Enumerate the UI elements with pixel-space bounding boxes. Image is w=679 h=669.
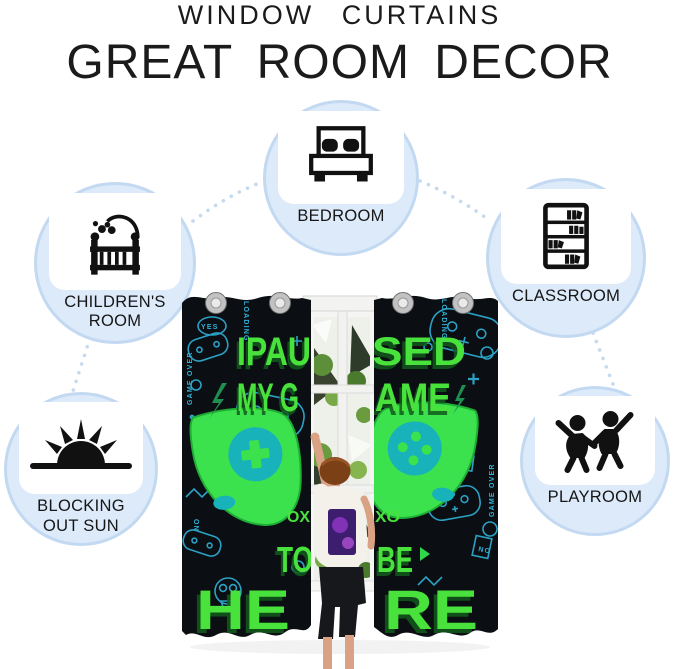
doodle-word-game-over-right: GAME OVER [489,463,496,517]
slogan-fragment-ipau: IPAU [237,330,311,374]
child-hand [311,433,320,442]
curtain-scene: LOADING YES GAME OVER ON [182,285,498,669]
page-title: GREAT ROOM DECOR [0,35,679,90]
slogan-fragment-ox: OX [287,509,310,526]
curtain-panel-left: LOADING YES GAME OVER ON [182,293,313,642]
dancing-kids-icon [547,406,643,476]
slogan-fragment-my-g: MY G [237,376,299,420]
connector-bedroom-classroom [420,181,489,220]
playroom-iconbox [535,396,656,485]
curtain-panel-right: LOADING GAME NO GAME OVER [362,293,498,642]
feature-label-classroom: CLASSROOM [512,287,620,306]
feature-label-blocking-sun: BLOCKING OUT SUN [27,497,135,536]
slogan-fragment-xo: XO [375,509,400,526]
feature-bubble-blocking-sun: BLOCKING OUT SUN [4,392,158,546]
product-infographic: WINDOW CURTAINS GREAT ROOM DECOR BEDROOM [0,0,679,669]
doodle-word-yes: YES [201,324,219,331]
child-right-leg [345,635,354,669]
window-rail-upper [310,385,374,393]
slogan-fragment-be: BE [377,539,413,580]
feature-bubble-playroom: PLAYROOM [520,386,670,536]
childrens-room-iconbox [49,193,180,290]
brand-line: WINDOW CURTAINS [0,0,679,31]
floor-shadow [190,640,490,654]
curtain-product-photo: LOADING YES GAME OVER ON [182,285,498,669]
blocking-sun-iconbox [19,402,143,494]
child-shorts [318,567,366,639]
sun-icon [23,417,139,479]
feature-label-childrens-room: CHILDREN'S ROOM [61,293,169,332]
crib-icon [77,205,153,277]
feature-bubble-classroom: CLASSROOM [486,178,646,338]
bedroom-iconbox [278,111,404,204]
connector-classroom-playroom [593,333,613,384]
slogan-fragment-re: RE [384,578,478,641]
feature-bubble-bedroom: BEDROOM [263,100,419,256]
feature-label-playroom: PLAYROOM [541,488,649,507]
feature-label-bedroom: BEDROOM [287,207,395,226]
bed-icon [303,124,379,190]
slogan-fragment-to: TO [277,539,313,580]
slogan-fragment-he: HE [196,578,290,641]
slogan-fragment-ame: AME [375,376,451,420]
doodle-word-game-over-left: GAME OVER [187,351,194,405]
child-left-leg [323,637,332,669]
feature-bubble-childrens-room: CHILDREN'S ROOM [34,182,196,344]
bookshelf-icon [530,201,602,271]
connector-childrens-sun [73,338,90,391]
classroom-iconbox [501,189,630,284]
connector-childrens-bedroom [193,182,262,221]
curtain-rod [303,296,377,311]
doodle-word-on: ON [192,519,199,532]
slogan-fragment-sed: SED [372,330,466,374]
